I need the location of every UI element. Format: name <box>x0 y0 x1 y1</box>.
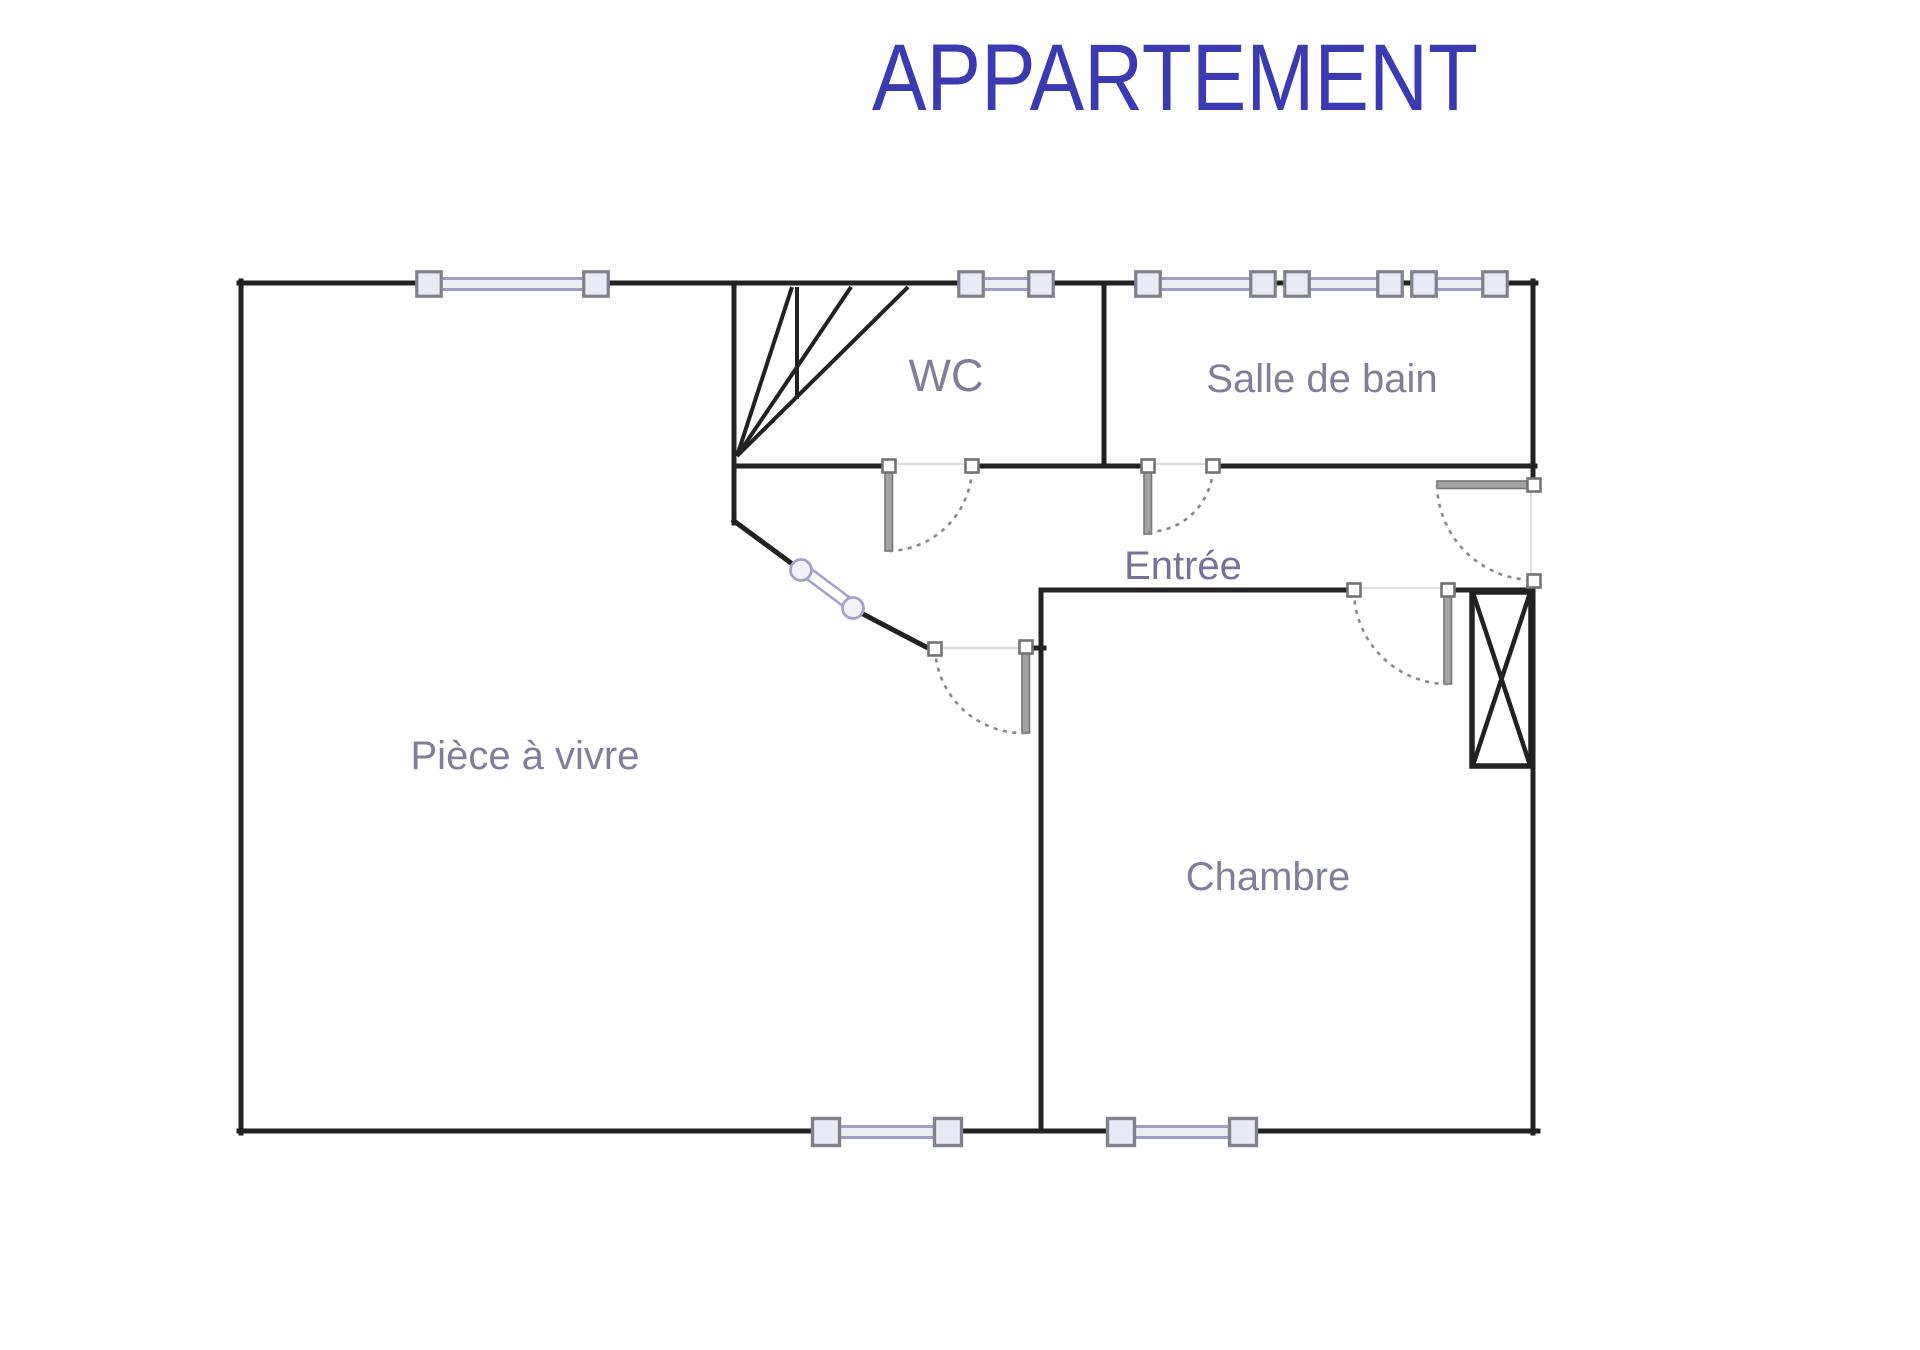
svg-text:Chambre: Chambre <box>1186 855 1351 899</box>
svg-text:Salle de bain: Salle de bain <box>1206 357 1437 401</box>
svg-text:Entrée: Entrée <box>1124 544 1242 588</box>
svg-text:WC: WC <box>909 350 984 401</box>
svg-text:Pièce à vivre: Pièce à vivre <box>411 734 640 778</box>
svg-text:APPARTEMENT: APPARTEMENT <box>872 25 1478 131</box>
